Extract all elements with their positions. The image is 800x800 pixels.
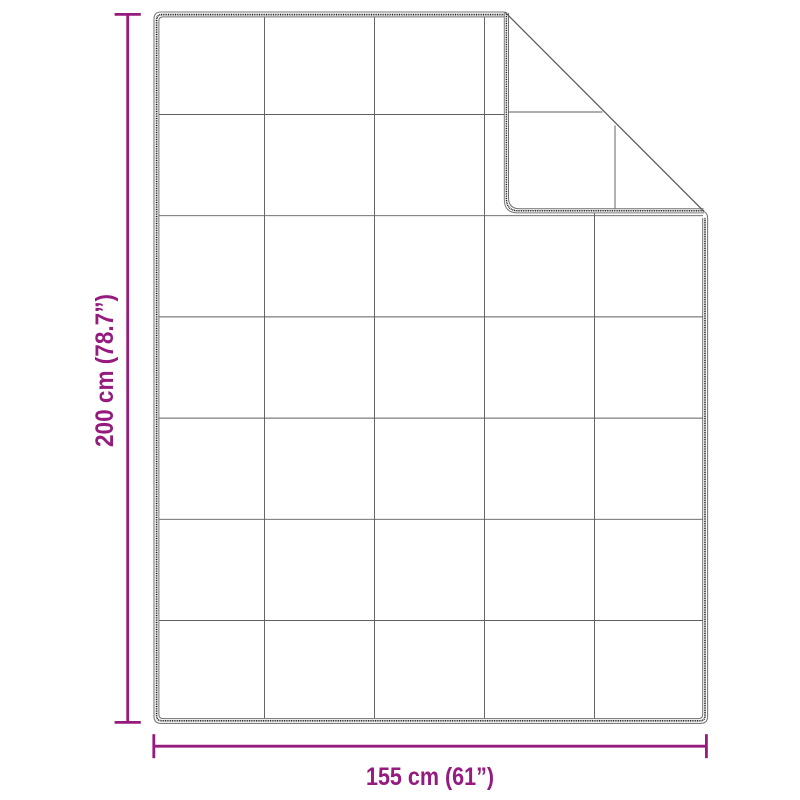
svg-text:155 cm (61”): 155 cm (61”) xyxy=(366,763,494,791)
svg-text:200 cm (78.7”): 200 cm (78.7”) xyxy=(91,294,119,447)
